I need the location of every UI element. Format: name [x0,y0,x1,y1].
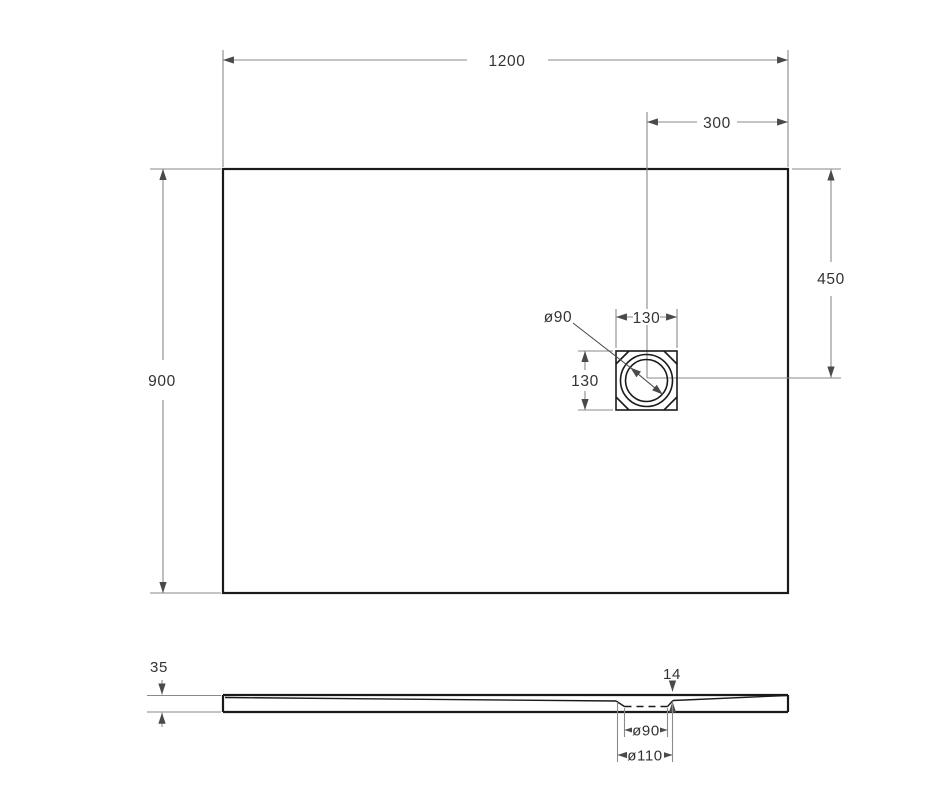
dim-450: 450 [792,169,845,378]
dim-drain-diameter-label: ø90 [544,309,573,326]
technical-drawing-page: 1200 300 900 450 [0,0,941,800]
dim-drain-box-width-label: 130 [633,310,661,327]
drain-chamfer-br [664,397,677,410]
dim-drain-recess-diameter-label: ø110 [627,748,662,765]
dim-height-label: 900 [148,373,176,390]
dim-300: 300 [647,115,788,132]
leader-line [573,323,630,368]
dim-1200: 1200 [223,50,788,167]
dim-130-height: 130 [570,351,613,410]
dim-width-label: 1200 [489,53,526,70]
dim-recess-depth-label: 14 [663,666,681,683]
tray-side-view: 35 14 ø90 ø110 [147,659,788,765]
dim-drain-offset-right-label: 300 [703,115,731,132]
dim-drain-hole-diameter-label: ø90 [632,723,660,740]
drain-chamfer-tr [664,351,677,364]
dim-thickness-label: 35 [150,659,168,676]
tray-side-profile [223,695,788,712]
tray-outline-top [223,169,788,593]
drain-chamfer-bl [616,397,629,410]
floor-slope-right [673,696,787,701]
dim-drain-offset-vertical-label: 450 [817,271,845,288]
tray-top-view: 1200 300 900 450 [148,50,845,593]
dim-35: 35 [147,659,221,727]
dim-drain-box-height-label: 130 [571,373,599,390]
dim-900: 900 [148,169,221,593]
floor-slope-left [225,698,616,702]
dim-14: 14 [663,666,681,762]
technical-drawing-canvas: 1200 300 900 450 [0,0,941,800]
